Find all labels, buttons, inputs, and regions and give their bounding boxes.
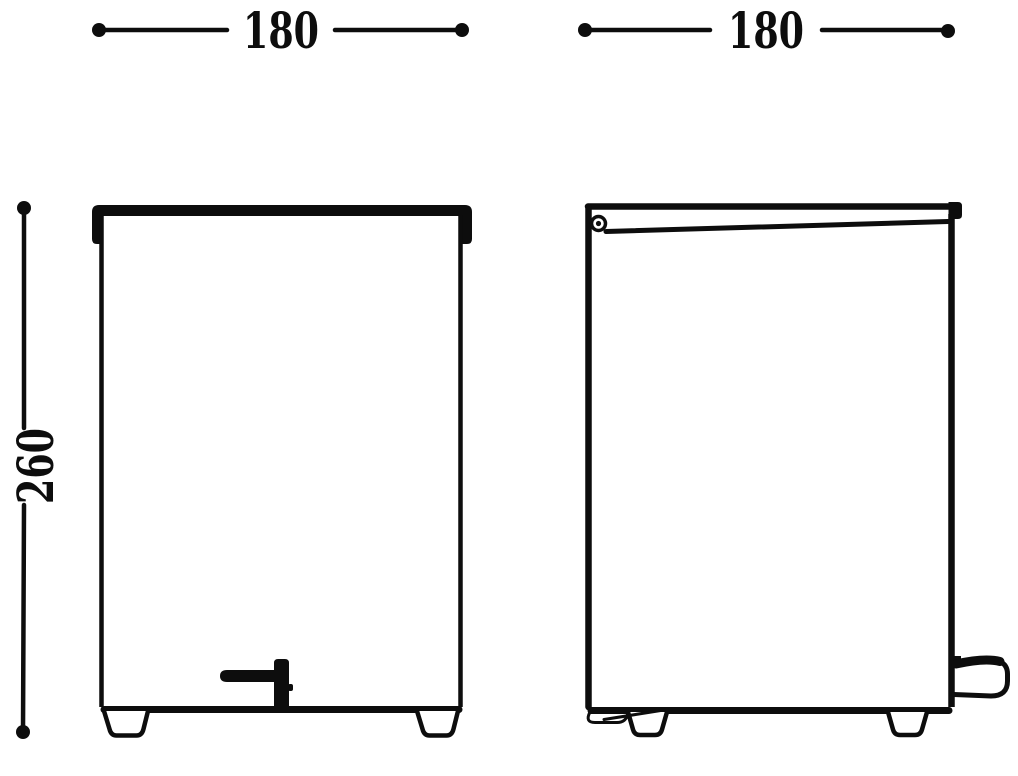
dim-side-depth: 180 [578, 1, 955, 60]
side-foot-pedal [952, 656, 1008, 696]
front-foot-left [104, 711, 148, 736]
dim-label-front-width: 180 [243, 1, 319, 60]
side-lid-underside-line [606, 222, 948, 232]
front-pedal-nub [288, 684, 293, 691]
dim-height: 260 [6, 201, 65, 739]
side-view [588, 202, 1008, 735]
dim-label-height: 260 [6, 428, 65, 504]
dim-label-side-depth: 180 [728, 1, 804, 60]
side-foot-right [888, 712, 927, 735]
dim-front-width: 180 [92, 1, 469, 60]
technical-drawing: 180 180 260 [0, 0, 1018, 776]
side-lid-lip-tab [949, 202, 963, 219]
hinge-pin [596, 221, 601, 226]
front-pedal-arm [220, 670, 278, 682]
drawing-canvas: 180 180 260 [0, 0, 1018, 776]
front-pedal-post [274, 659, 289, 712]
side-hinge-pivot [592, 217, 606, 231]
front-foot-right [417, 711, 458, 736]
dim-line [23, 505, 24, 732]
front-lid [92, 205, 472, 244]
front-view [92, 205, 472, 736]
pedal-top-plate [956, 660, 1000, 664]
front-pedal-linkage [220, 659, 293, 712]
